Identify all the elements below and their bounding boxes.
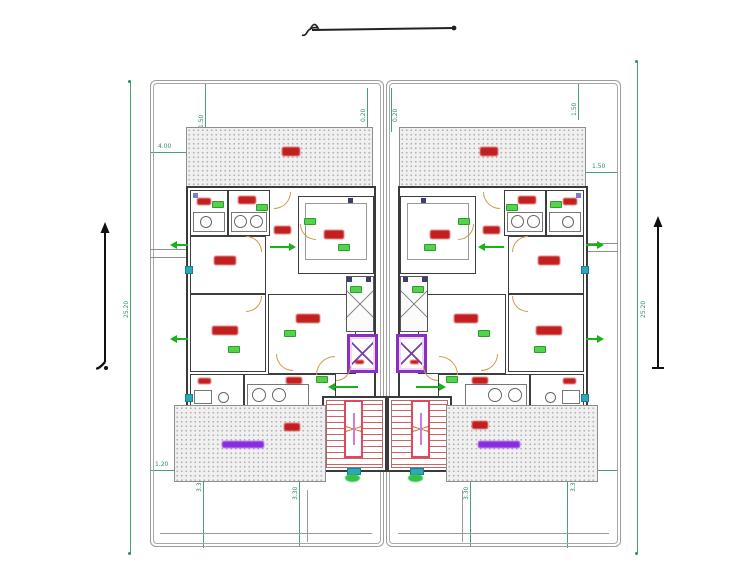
wall-marker xyxy=(185,394,193,402)
parking-strip-right xyxy=(446,405,598,482)
shaft-corner xyxy=(347,277,352,282)
hall-arrow xyxy=(484,246,504,248)
yard-line xyxy=(160,533,372,534)
staircase-left xyxy=(322,396,387,472)
vent-badge xyxy=(478,330,490,337)
floor-plan-canvas: 25.20 25.20 4.00 1.50 0.20 0.20 1.50 1.5… xyxy=(0,0,750,573)
terrace-right-label xyxy=(480,147,498,156)
parking-left-text xyxy=(222,441,264,448)
bath-label xyxy=(518,196,536,204)
vent-badge xyxy=(458,218,470,225)
vent-arrow xyxy=(176,338,188,340)
dim-line-left xyxy=(130,82,131,554)
street-arrow-left xyxy=(96,222,116,380)
wall-marker xyxy=(581,266,589,274)
bedroom-side-label xyxy=(538,256,560,265)
vent-badge xyxy=(316,376,328,383)
setback-line xyxy=(584,251,618,252)
bath-label xyxy=(197,198,211,205)
parking-right-text xyxy=(478,441,520,448)
hall-arrow xyxy=(270,246,290,248)
stair-core xyxy=(344,400,363,458)
vent-badge xyxy=(212,201,224,208)
living-label xyxy=(296,314,320,323)
parking-left-label xyxy=(284,423,300,431)
wc-fixture xyxy=(562,390,580,404)
vent-badge xyxy=(228,346,240,353)
sink xyxy=(562,216,574,228)
sink xyxy=(250,215,263,228)
terrace-left xyxy=(186,127,373,188)
dim-dot xyxy=(635,552,638,555)
shaft-corner xyxy=(422,277,427,282)
living-label xyxy=(454,314,478,323)
entry-arrow xyxy=(416,386,440,388)
yard-wall xyxy=(307,490,308,542)
sink xyxy=(200,216,212,228)
vent-arrow xyxy=(176,244,188,246)
dim-dot xyxy=(128,80,131,83)
kitchen-sink xyxy=(272,388,286,402)
sink xyxy=(234,215,247,228)
section-line xyxy=(296,14,466,44)
vent-badge xyxy=(350,286,362,293)
unit-left xyxy=(186,186,376,414)
dim-line-right xyxy=(637,62,638,554)
vent-badge xyxy=(338,244,350,251)
elevator xyxy=(347,334,378,373)
majlis-label xyxy=(536,326,562,335)
vent-badge xyxy=(534,346,546,353)
kitchen-sink xyxy=(252,388,266,402)
vent-badge xyxy=(304,218,316,225)
closet-marker xyxy=(348,198,353,203)
dim-text-left: 25.20 xyxy=(124,301,130,318)
vent-arrow xyxy=(586,338,598,340)
street-arrow-right xyxy=(648,216,668,382)
kitchen-label xyxy=(472,377,488,384)
unit-right xyxy=(398,186,588,414)
yard-line xyxy=(398,533,609,534)
hall-label xyxy=(274,226,291,234)
entry-arrow xyxy=(334,386,358,388)
stair-landing-marker xyxy=(408,474,423,482)
door-arc xyxy=(483,192,500,209)
dim-dot xyxy=(128,552,131,555)
closet-marker xyxy=(421,198,426,203)
wall-marker xyxy=(581,394,589,402)
hall-label xyxy=(483,226,500,234)
sink xyxy=(511,215,524,228)
stair-landing-marker xyxy=(345,474,360,482)
elevator-tick xyxy=(410,360,419,364)
wc-label xyxy=(563,378,576,384)
shaft-marker xyxy=(576,193,581,198)
bedroom-side-label xyxy=(214,256,236,265)
terrace-right xyxy=(399,127,586,188)
wc-sink xyxy=(545,392,556,403)
majlis-label xyxy=(212,326,238,335)
yard-wall xyxy=(462,490,463,542)
vent-badge xyxy=(256,204,268,211)
kitchen-label xyxy=(286,377,302,384)
stair-core xyxy=(411,400,430,458)
bath-label xyxy=(563,198,577,205)
door-arc xyxy=(336,366,351,381)
staircase-right xyxy=(387,396,452,472)
shaft-corner xyxy=(366,277,371,282)
bedroom-front-label xyxy=(430,230,450,239)
sink xyxy=(527,215,540,228)
kitchen-sink xyxy=(488,388,502,402)
door-arc xyxy=(274,192,291,209)
vent-badge xyxy=(424,244,436,251)
wc-label xyxy=(198,378,211,384)
light-shaft xyxy=(400,276,428,332)
light-shaft xyxy=(346,276,374,332)
parking-right-label xyxy=(472,421,488,429)
bath-label xyxy=(238,196,256,204)
vent-badge xyxy=(412,286,424,293)
vent-badge xyxy=(284,330,296,337)
vent-badge xyxy=(550,201,562,208)
wc-sink xyxy=(218,392,229,403)
setback-line xyxy=(151,249,186,250)
vent-badge xyxy=(506,204,518,211)
door-arc xyxy=(423,366,438,381)
setback-line xyxy=(151,257,186,258)
vent-badge xyxy=(446,376,458,383)
wall-marker xyxy=(185,266,193,274)
wc-fixture xyxy=(194,390,212,404)
terrace-left-label xyxy=(282,147,300,156)
elevator-tick xyxy=(355,360,364,364)
dim-dot xyxy=(635,60,638,63)
kitchen-sink xyxy=(508,388,522,402)
dim-text-right: 25.20 xyxy=(641,301,647,318)
vent-arrow xyxy=(586,244,598,246)
shaft-corner xyxy=(403,277,408,282)
bedroom-front-label xyxy=(324,230,344,239)
